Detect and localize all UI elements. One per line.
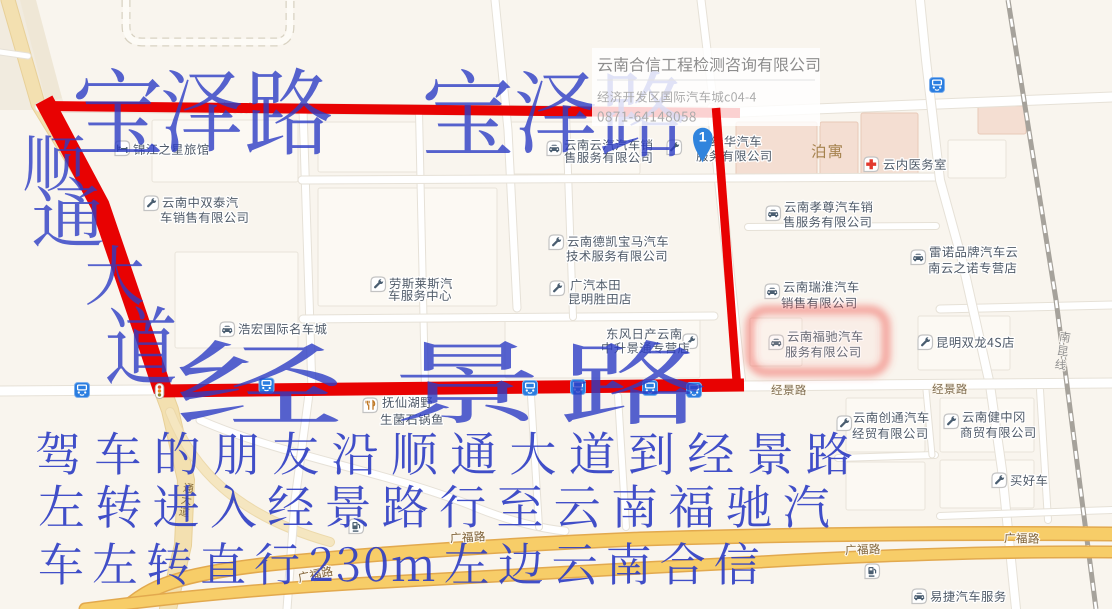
svg-text:1: 1 xyxy=(699,129,707,145)
